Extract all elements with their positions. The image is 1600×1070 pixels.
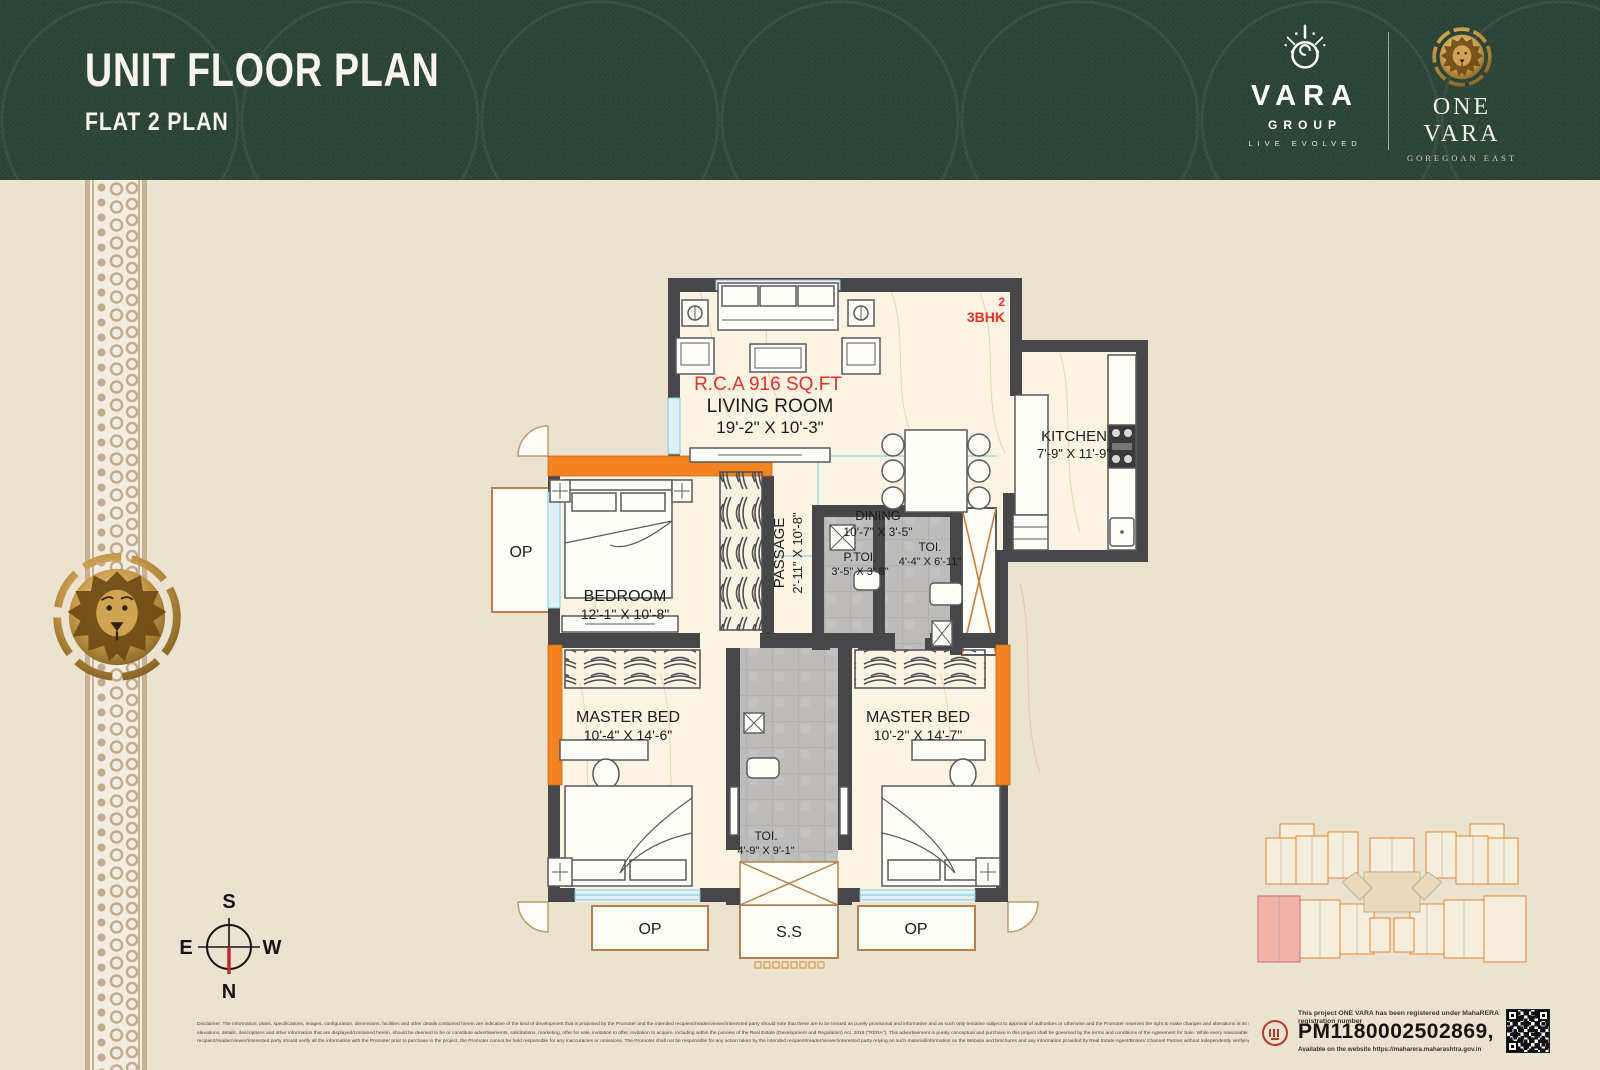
disclaimer-line-3: recipient/reader/viewer/interested party… — [197, 1038, 1249, 1047]
disclaimer-text: Disclaimer: The information, plans, spec… — [197, 1021, 1249, 1047]
op-bottom-right-label: OP — [904, 921, 927, 938]
service-shaft — [962, 508, 996, 655]
toilet2-dim: 4'-9" X 9'-1" — [737, 845, 794, 857]
one-vara-location: GOREGOAN EAST — [1398, 153, 1526, 163]
rera-number: PM1180002502869, — [1298, 1020, 1494, 1044]
header-banner: UNIT FLOOR PLAN FLAT 2 PLAN VARA GROUP — [0, 0, 1600, 180]
page-title: UNIT FLOOR PLAN — [85, 42, 440, 97]
rca-area-label: R.C.A 916 SQ.FT — [694, 374, 842, 395]
unit-number-label: 2 — [998, 295, 1005, 309]
logo-divider — [1388, 32, 1389, 150]
disclaimer-line-1: Disclaimer: The information, plans, spec… — [197, 1021, 1249, 1030]
bedroom-label: BEDROOM — [584, 588, 667, 605]
living-room-dim: 19'-2" X 10'-3" — [716, 418, 823, 437]
bedroom-dim: 12'-1" X 10'-8" — [581, 606, 669, 622]
rera-registration-block: This project ONE VARA has been registere… — [1262, 1008, 1552, 1064]
p-toilet-label: P.TOI. — [844, 550, 877, 564]
qr-code — [1507, 1010, 1549, 1052]
lion-medallion-ornament — [52, 552, 182, 682]
vara-sun-icon — [1276, 22, 1334, 78]
vara-group-logo: VARA GROUP LIVE EVOLVED — [1245, 22, 1365, 148]
toilet2-label: TOI. — [754, 829, 777, 843]
op-left-label: OP — [509, 544, 532, 561]
compass-west: W — [263, 937, 282, 959]
kitchen-label: KITCHEN — [1041, 428, 1107, 445]
op-bottom-left-label: OP — [638, 921, 661, 938]
maharera-seal-icon — [1262, 1020, 1288, 1046]
master2-dim: 10'-2" X 14'-7" — [874, 727, 962, 743]
key-plan — [1252, 788, 1537, 978]
master1-label: MASTER BED — [576, 709, 680, 726]
dining-dim: 10'-7" X 3'-5" — [843, 525, 912, 539]
compass-east: E — [179, 937, 192, 959]
one-vara-wordmark: ONE VARA — [1398, 94, 1526, 148]
passage-dim: 2'-11" X 10'-8" — [790, 512, 805, 594]
vara-wordmark: VARA — [1245, 80, 1365, 113]
page-subtitle: FLAT 2 PLAN — [85, 108, 229, 137]
master2-label: MASTER BED — [866, 709, 970, 726]
vara-group-label: GROUP — [1245, 118, 1365, 132]
toilet1-label: TOI. — [918, 540, 941, 554]
one-vara-logo: ONE VARA GOREGOAN EAST — [1398, 26, 1526, 163]
disclaimer-line-2: elevations, details, descriptions and ot… — [197, 1030, 1249, 1039]
vara-tagline: LIVE EVOLVED — [1245, 139, 1365, 148]
unit-floor-plan: 2 3BHK R.C.A 916 SQ.FT LIVING ROOM 19'-2… — [460, 253, 1160, 975]
toilet1-dim: 4'-4" X 6'-11" — [899, 556, 962, 568]
unit-type-label: 3BHK — [967, 309, 1005, 325]
compass-north: N — [222, 981, 236, 1000]
kitchen-dim: 7'-9" X 11'-9" — [1037, 446, 1111, 461]
lion-medallion-icon — [1431, 26, 1493, 88]
ss-label: S.S — [776, 924, 802, 941]
passage-label: PASSAGE — [771, 518, 788, 589]
compass-rose: S E W N — [173, 888, 285, 1000]
master1-dim: 10'-4" X 14'-6" — [584, 727, 672, 743]
compass-south: S — [222, 891, 235, 913]
dining-label: DINING — [855, 508, 901, 523]
p-toilet-dim: 3'-5" X 3'-8" — [831, 566, 888, 578]
rera-website: Available on the website https://maharer… — [1298, 1046, 1481, 1053]
brochure-page: UNIT FLOOR PLAN FLAT 2 PLAN VARA GROUP — [0, 0, 1600, 1070]
living-room-label: LIVING ROOM — [707, 396, 834, 417]
